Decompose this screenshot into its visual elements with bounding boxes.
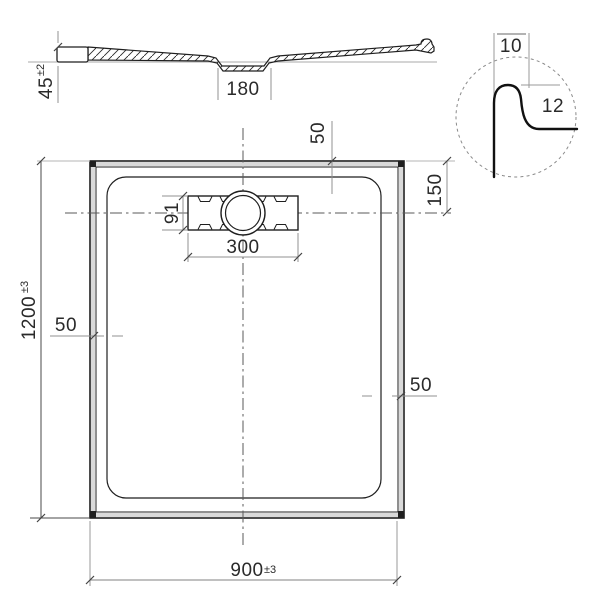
detail-height-label: 12 <box>542 96 564 117</box>
technical-drawing: 45 ±2 180 10 12 <box>0 0 600 600</box>
dimension-width: 900 ±3 <box>86 521 401 586</box>
drain-outer-ring <box>221 191 265 235</box>
drawing-page: 45 ±2 180 10 12 <box>0 0 600 600</box>
width-tolerance: ±3 <box>264 564 276 576</box>
corner-joint <box>398 161 405 168</box>
section-height-tolerance: ±2 <box>35 64 47 76</box>
section-left-edge <box>57 47 88 62</box>
plan-view: 1200 ±3 900 ±3 50 <box>19 121 455 586</box>
dimension-section-drain-width: 180 <box>218 68 271 100</box>
corner-joint <box>90 511 97 518</box>
dimension-left-offset: 50 <box>50 315 123 340</box>
right-center-offset-label: 150 <box>425 173 446 206</box>
dimension-section-height: 45 ±2 <box>35 31 62 103</box>
corner-joint <box>398 511 405 518</box>
drain-height-label: 91 <box>162 202 183 224</box>
dimension-right-center-offset: 150 <box>406 157 455 216</box>
corner-joint <box>90 161 97 168</box>
length-label: 1200 <box>19 296 40 340</box>
top-offset-label: 50 <box>308 122 329 144</box>
detail-edge-profile <box>494 85 577 177</box>
section-view: 45 ±2 180 <box>28 31 437 103</box>
length-tolerance: ±3 <box>19 281 31 293</box>
dimension-drain-width: 300 <box>184 233 302 262</box>
drain-width-label: 300 <box>226 237 259 258</box>
section-tray-body <box>88 39 434 71</box>
section-drain-width-label: 180 <box>226 79 259 100</box>
drain-assembly <box>188 191 298 235</box>
left-offset-label: 50 <box>55 315 77 336</box>
detail-top-width-label: 10 <box>500 36 522 57</box>
dimension-length: 1200 ±3 <box>19 157 90 522</box>
detail-boundary-circle <box>456 57 576 177</box>
detail-view: 10 12 <box>456 33 577 177</box>
width-label: 900 <box>230 560 263 581</box>
section-height-label: 45 <box>36 77 57 99</box>
right-offset-label: 50 <box>410 375 432 396</box>
dimension-top-offset: 50 <box>308 121 336 194</box>
